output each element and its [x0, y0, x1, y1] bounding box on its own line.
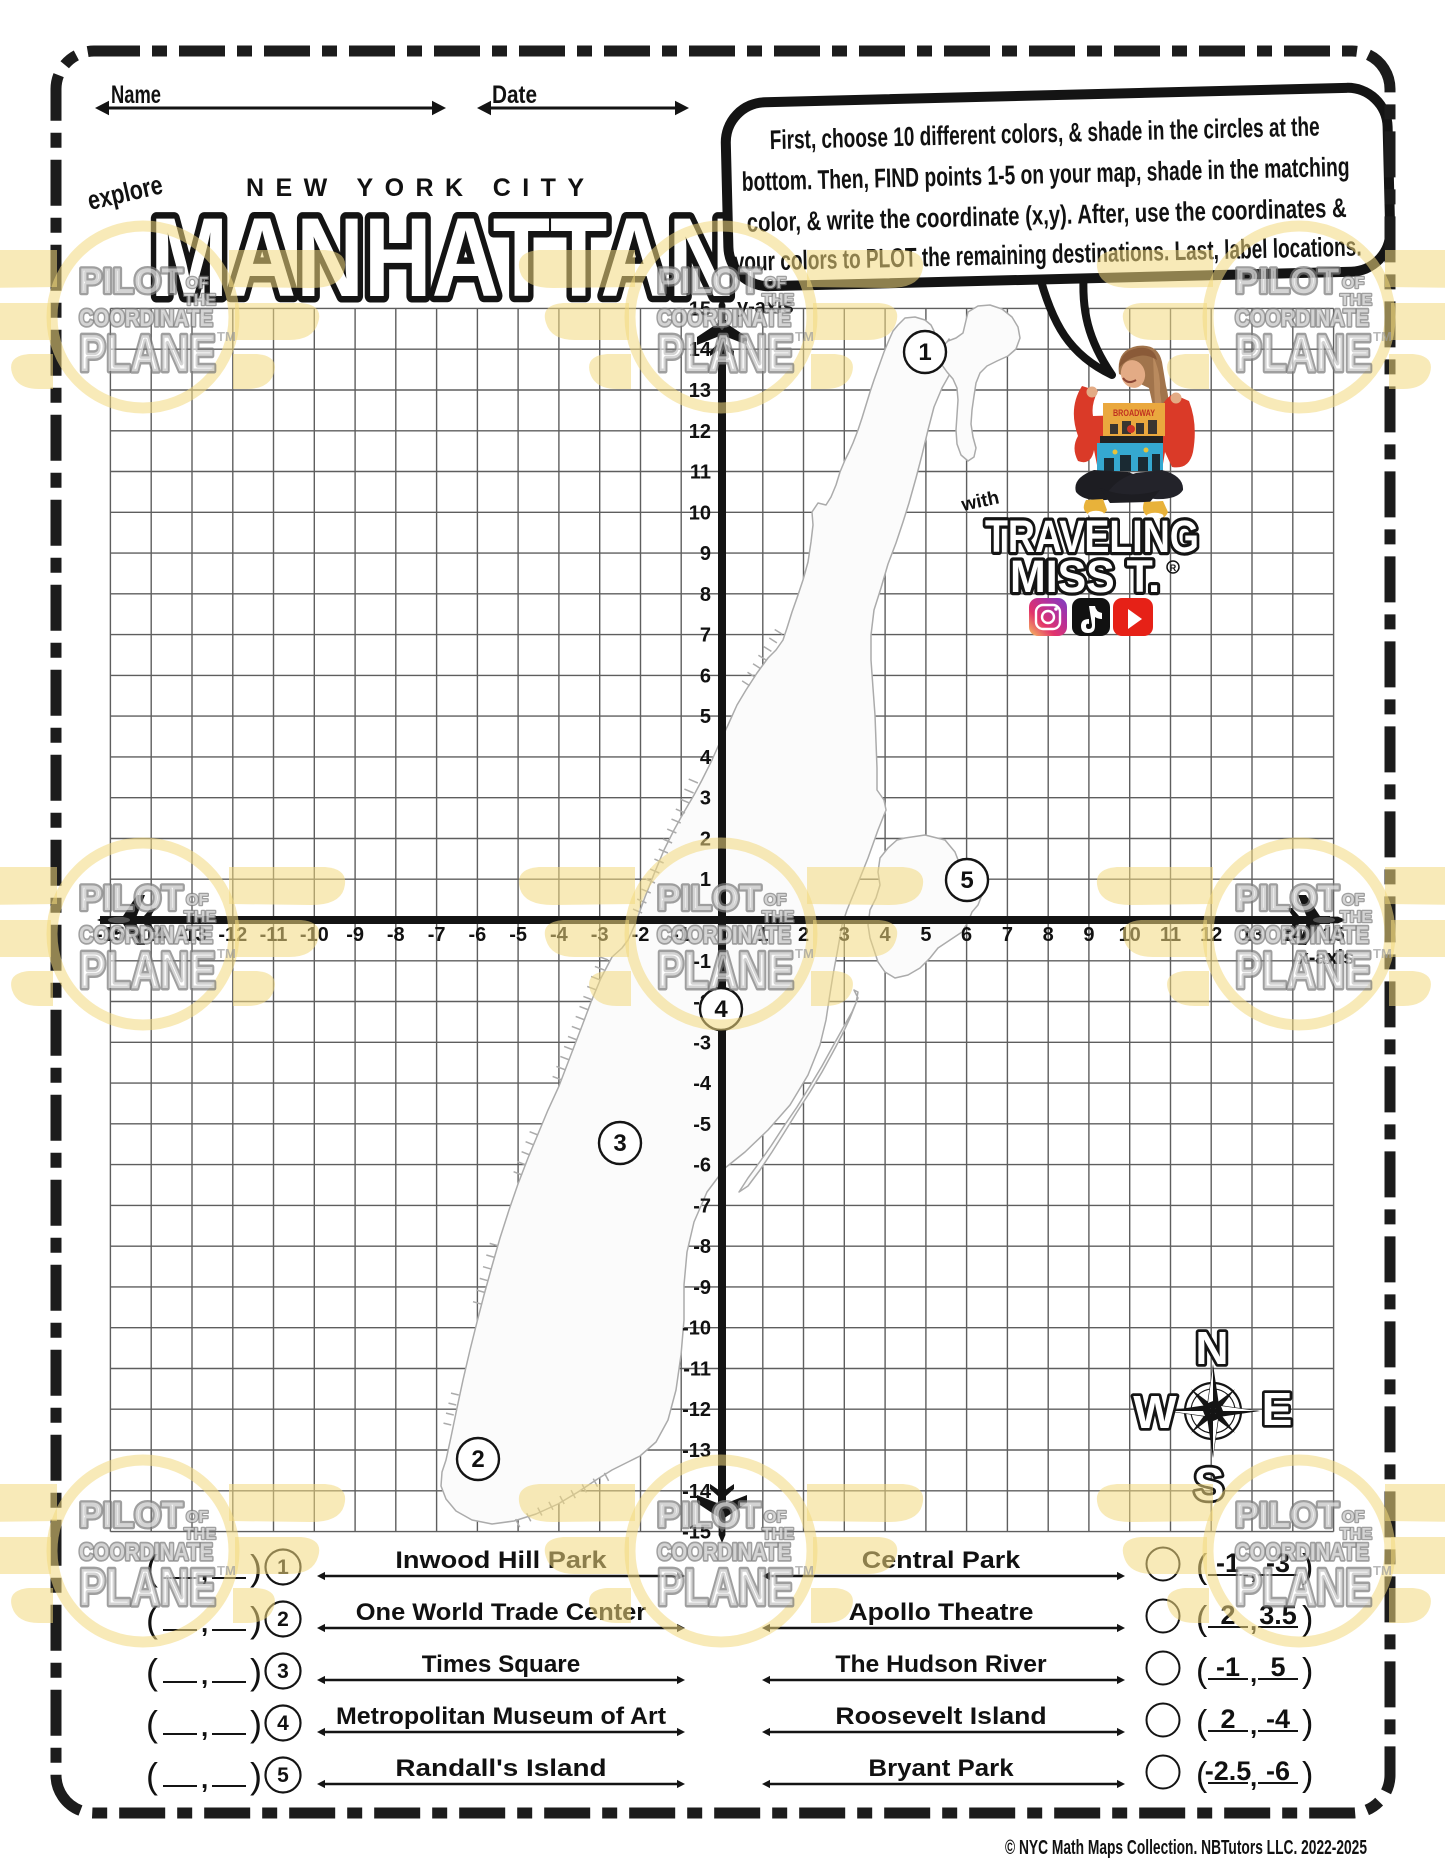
svg-text:6: 6 [961, 924, 972, 946]
svg-text:W: W [1133, 1386, 1177, 1438]
svg-text:5: 5 [1270, 1652, 1285, 1682]
svg-text:-11: -11 [683, 1359, 711, 1381]
svg-text:(: ( [146, 1755, 158, 1796]
svg-text:-4: -4 [693, 1073, 712, 1095]
svg-text:5: 5 [960, 867, 973, 894]
svg-text:Bryant Park: Bryant Park [868, 1755, 1014, 1782]
svg-text:1: 1 [918, 339, 931, 366]
svg-text:-2.5: -2.5 [1205, 1756, 1252, 1786]
svg-text:5: 5 [920, 924, 931, 946]
svg-text:(: ( [1196, 1704, 1208, 1742]
svg-text:12: 12 [689, 421, 711, 443]
svg-text:Name: Name [111, 81, 161, 109]
svg-text:3: 3 [700, 788, 711, 810]
svg-text:9: 9 [700, 543, 711, 565]
svg-text:© NYC Math Maps Collection. NB: © NYC Math Maps Collection. NBTutors LLC… [1005, 1837, 1367, 1859]
svg-text:-6: -6 [693, 1155, 711, 1177]
svg-text:2: 2 [471, 1446, 484, 1473]
svg-text:Apollo Theatre: Apollo Theatre [849, 1599, 1034, 1626]
svg-text:3: 3 [277, 1660, 289, 1683]
svg-text:R: R [1170, 563, 1177, 573]
svg-text:,: , [201, 1764, 208, 1794]
svg-text:(: ( [146, 1651, 158, 1692]
svg-text:): ) [250, 1703, 262, 1744]
svg-text:-7: -7 [693, 1195, 711, 1217]
svg-text:11: 11 [690, 462, 711, 484]
svg-text:Date: Date [492, 81, 537, 109]
svg-text:,: , [1250, 1710, 1257, 1740]
svg-text:-7: -7 [428, 924, 446, 946]
svg-text:-3: -3 [693, 1032, 711, 1054]
svg-text:Roosevelt Island: Roosevelt Island [835, 1703, 1046, 1730]
svg-text:): ) [1302, 1704, 1313, 1742]
svg-text:,: , [1250, 1762, 1257, 1792]
svg-text:(: ( [1196, 1652, 1208, 1690]
svg-text:): ) [250, 1755, 262, 1796]
svg-text:,: , [201, 1660, 208, 1690]
svg-text:5: 5 [700, 706, 711, 728]
svg-text:7: 7 [700, 625, 711, 647]
svg-text:): ) [250, 1651, 262, 1692]
svg-text:2: 2 [1220, 1704, 1235, 1734]
svg-text:Randall's Island: Randall's Island [395, 1755, 606, 1782]
svg-text:-5: -5 [693, 1114, 711, 1136]
svg-text:7: 7 [1002, 924, 1013, 946]
svg-text:3: 3 [613, 1130, 626, 1157]
svg-text:4: 4 [700, 747, 712, 769]
svg-text:10: 10 [689, 502, 711, 524]
svg-text:-5: -5 [509, 924, 527, 946]
svg-text:9: 9 [1083, 924, 1094, 946]
svg-text:MISS T.: MISS T. [1010, 551, 1160, 602]
svg-text:): ) [1302, 1756, 1313, 1794]
svg-text:8: 8 [700, 584, 711, 606]
svg-text:2: 2 [277, 1608, 289, 1631]
svg-text:4: 4 [714, 996, 728, 1023]
svg-text:,: , [201, 1712, 208, 1742]
svg-text:-9: -9 [693, 1277, 711, 1299]
svg-text:-9: -9 [346, 924, 364, 946]
svg-text:8: 8 [1043, 924, 1054, 946]
svg-text:4: 4 [277, 1712, 289, 1735]
svg-text:-4: -4 [1266, 1704, 1290, 1734]
svg-text:): ) [1302, 1652, 1313, 1690]
svg-text:Times Square: Times Square [422, 1651, 580, 1678]
svg-text:-1: -1 [1216, 1652, 1240, 1682]
svg-text:-8: -8 [387, 924, 405, 946]
svg-text:5: 5 [277, 1764, 289, 1787]
svg-text:(: ( [146, 1703, 158, 1744]
svg-text:Metropolitan Museum of Art: Metropolitan Museum of Art [336, 1703, 666, 1730]
svg-text:6: 6 [700, 665, 711, 687]
svg-text:-10: -10 [682, 1318, 711, 1340]
svg-text:N: N [1195, 1322, 1228, 1374]
svg-text:-6: -6 [469, 924, 487, 946]
svg-text:E: E [1262, 1383, 1293, 1435]
svg-text:The Hudson River: The Hudson River [835, 1651, 1046, 1678]
svg-text:,: , [1250, 1658, 1257, 1688]
svg-text:-8: -8 [693, 1236, 711, 1258]
svg-text:-12: -12 [682, 1399, 711, 1421]
svg-text:-6: -6 [1266, 1756, 1290, 1786]
svg-text:BROADWAY: BROADWAY [1113, 408, 1155, 418]
